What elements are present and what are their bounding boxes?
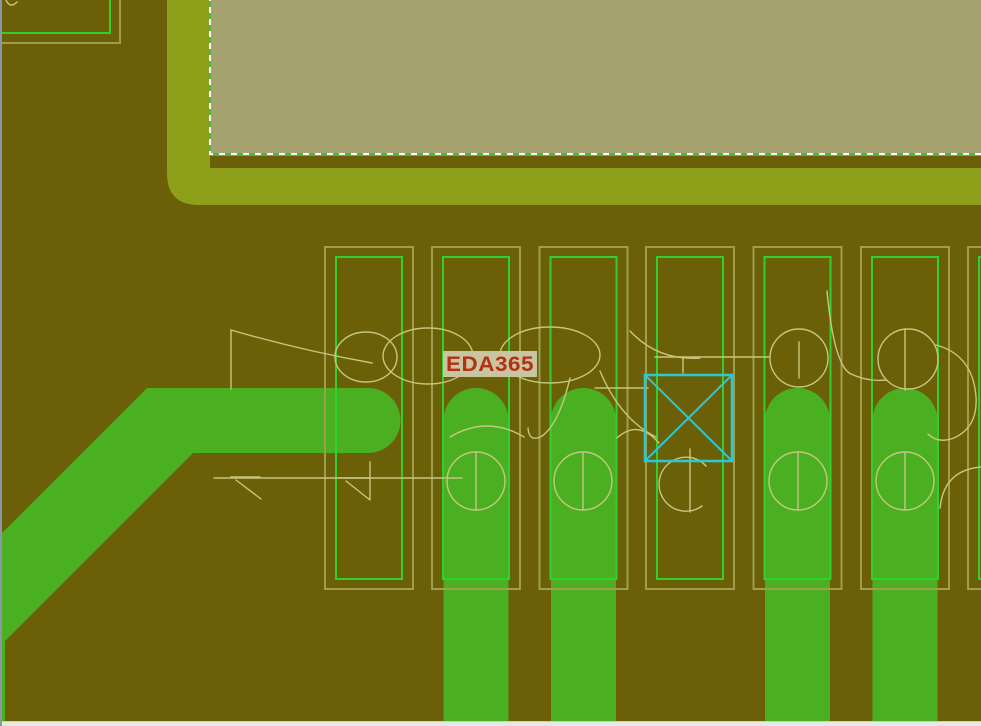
window-left-edge <box>0 0 2 726</box>
window-bottom-strip <box>0 722 981 726</box>
copper-trace[interactable] <box>765 388 830 722</box>
window-strip-border <box>0 721 981 722</box>
plane-gap-strip <box>210 156 981 168</box>
layout-canvas[interactable]: EDA365 <box>0 0 981 726</box>
copper-trace[interactable] <box>444 388 509 722</box>
eda365-label[interactable]: EDA365 <box>443 351 537 377</box>
label-text: EDA365 <box>446 353 534 376</box>
copper-plane-fill[interactable] <box>210 0 981 155</box>
pcb-editor-window: EDA365 <box>0 0 981 726</box>
copper-trace[interactable] <box>873 388 938 722</box>
copper-trace[interactable] <box>551 388 616 722</box>
